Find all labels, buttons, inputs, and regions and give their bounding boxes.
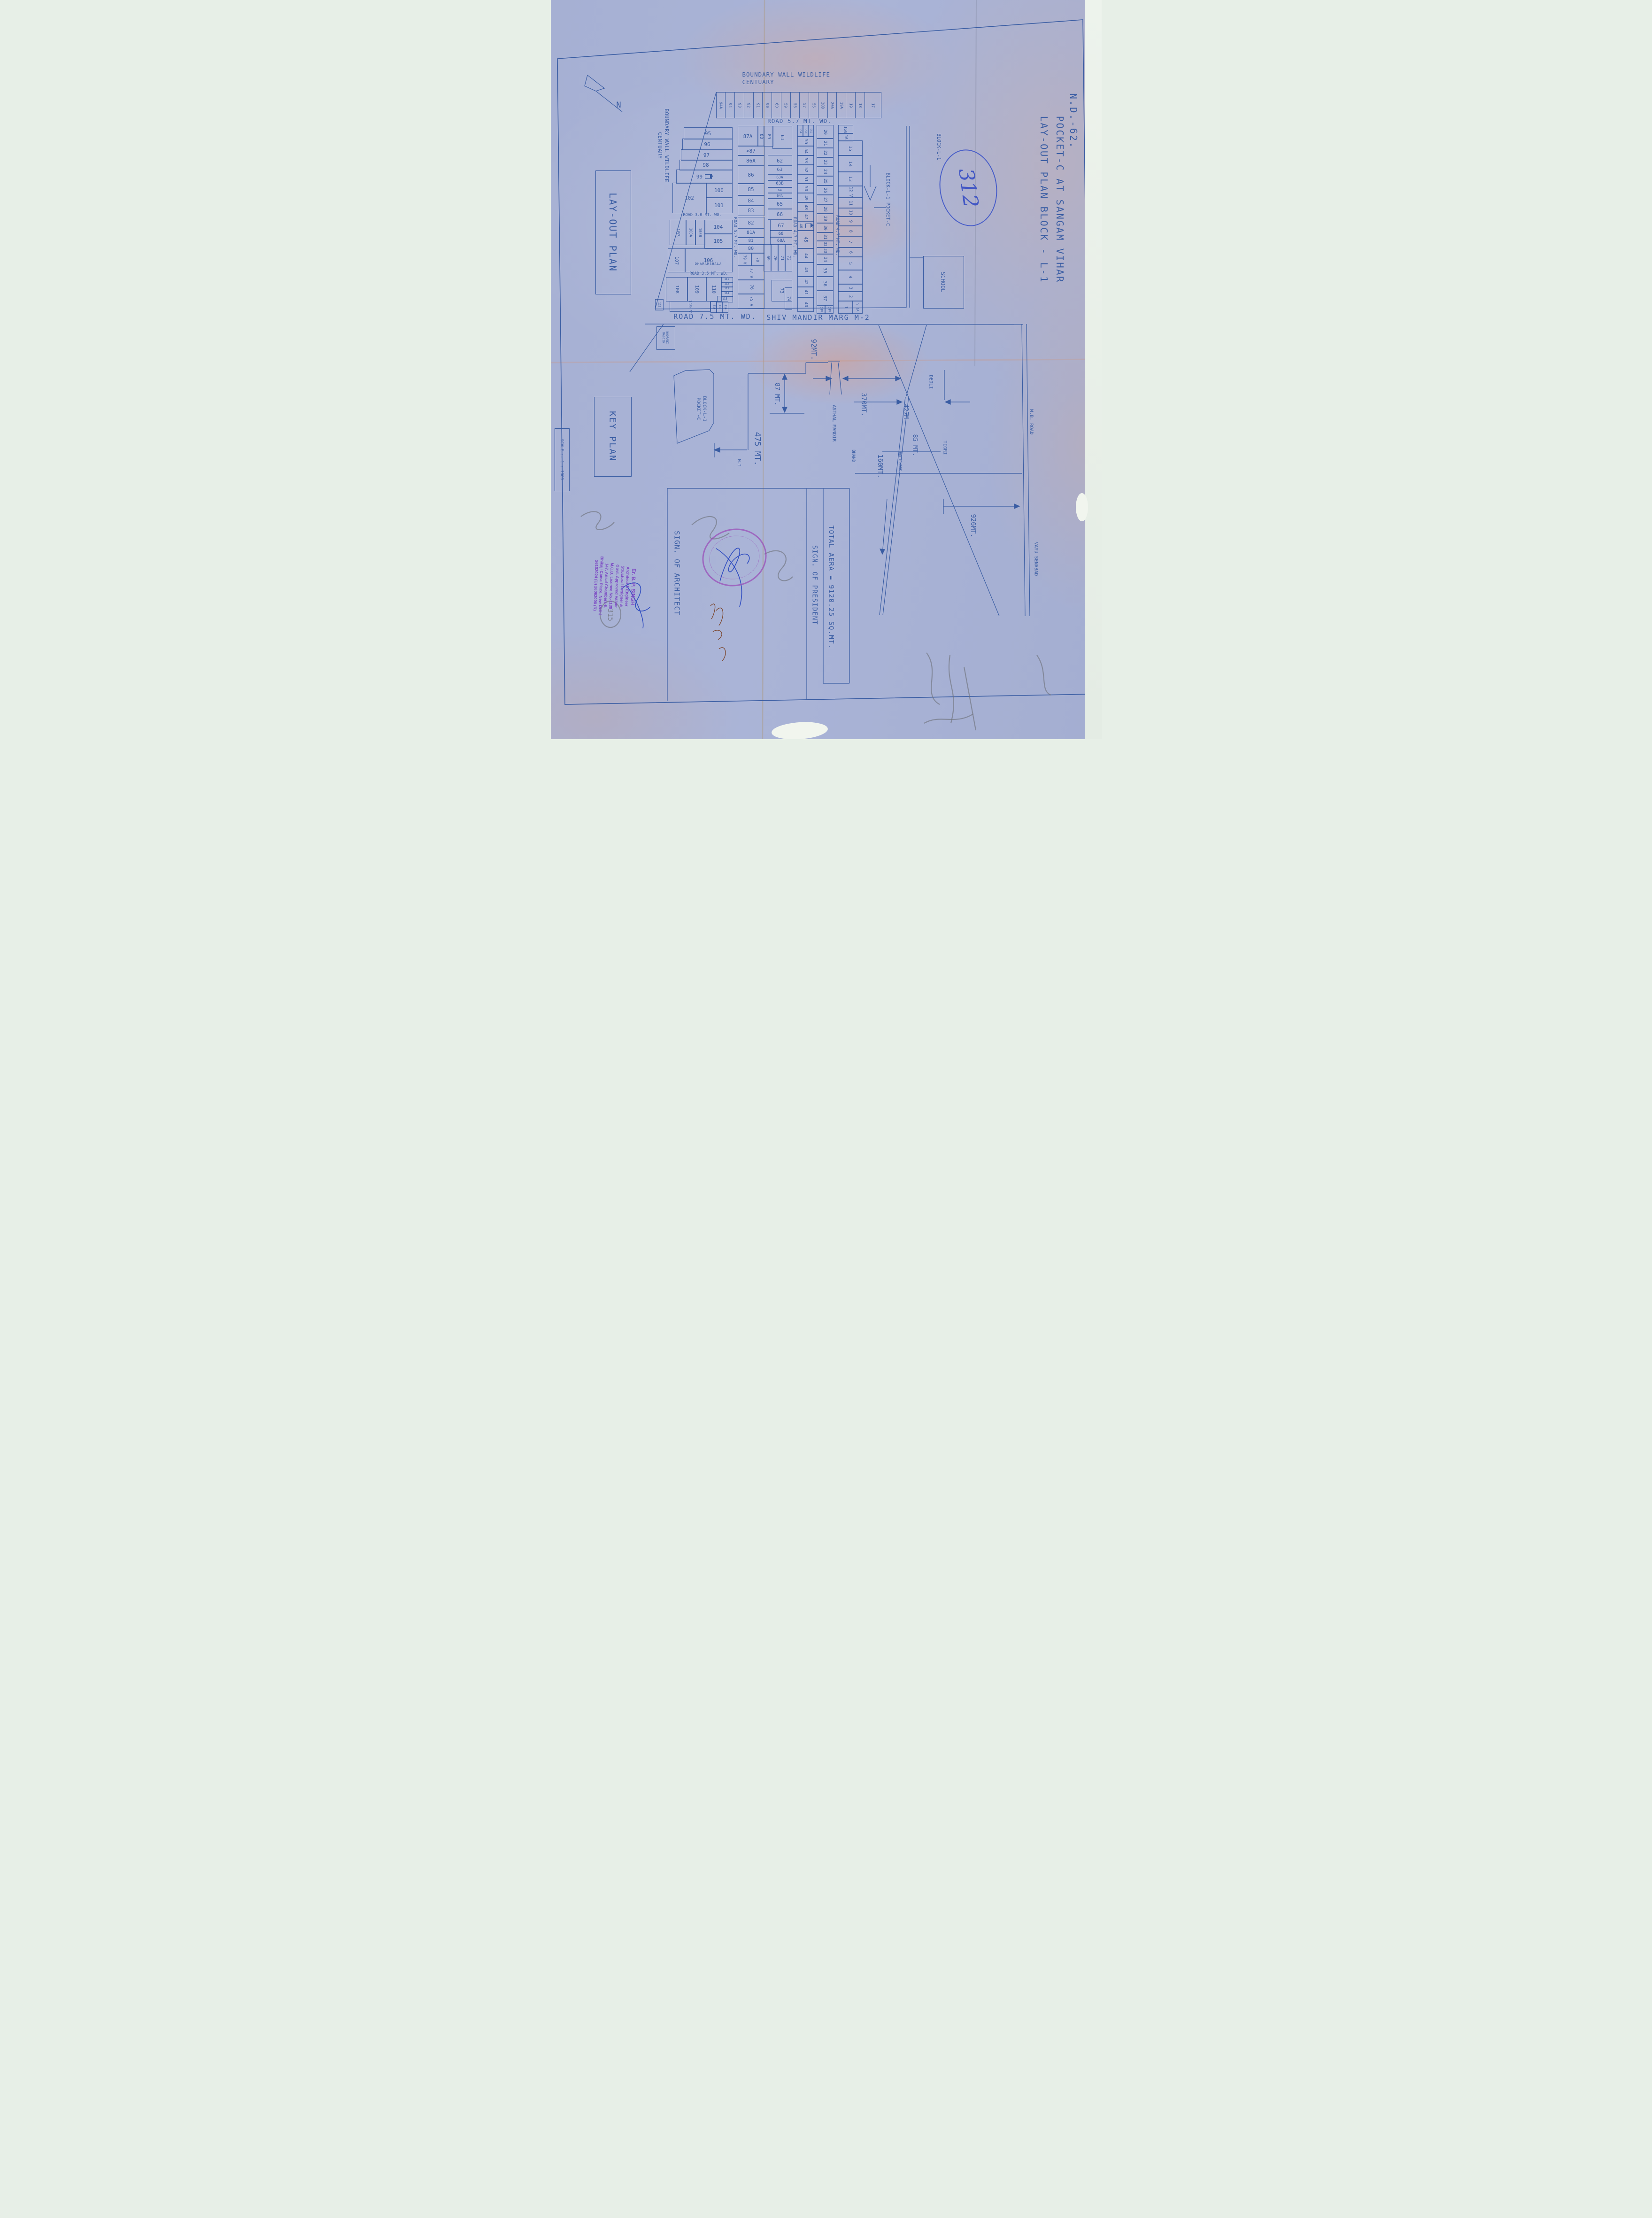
plot-76: 76 xyxy=(738,279,764,294)
plot-10: 10 xyxy=(838,208,863,217)
plot-50: 50 xyxy=(797,183,814,193)
layout-plan-label: LAY-OUT PLAN xyxy=(595,170,630,294)
road-label: ROAD 4.7 MT. WD. xyxy=(791,201,798,274)
plot-57: 57 xyxy=(800,93,809,118)
plot-56: 56 xyxy=(809,93,818,118)
block-l1: BLOCK-L-1 xyxy=(934,122,943,171)
plot-30: 30 xyxy=(817,223,834,233)
plot-100: 100 xyxy=(706,183,733,198)
plot-11: 11 xyxy=(838,197,863,209)
plot-42: 42 xyxy=(797,276,814,287)
road-35: ROAD 3.5 MT. WD. xyxy=(683,271,735,277)
plot-54: 54 xyxy=(797,146,814,156)
plot-37: 37 xyxy=(817,290,834,306)
plot-31: 31 xyxy=(817,232,834,241)
plot-66: 66 xyxy=(768,209,792,220)
plot-99: 99 xyxy=(676,170,733,184)
road-m1: M-I xyxy=(735,455,742,471)
school-label: SCHOOL xyxy=(923,256,963,308)
plot-47: 47 xyxy=(797,211,814,222)
plot-24: 24 xyxy=(817,166,834,177)
plot-8: 8 xyxy=(838,225,863,237)
plot-2: 2 xyxy=(838,291,863,301)
plot-46: 46 xyxy=(797,221,814,231)
plot-7: 7 xyxy=(838,236,863,248)
plot-21: 21 xyxy=(817,138,834,148)
plot-34: 34 xyxy=(817,254,834,265)
plot-89: 89 xyxy=(764,126,773,147)
plot-22: 22 xyxy=(817,147,834,158)
dim-92mt: 92MT. xyxy=(808,332,819,367)
plot-74: 74 xyxy=(785,287,792,310)
plot-45: 45 xyxy=(797,230,814,249)
plot-82: 82 xyxy=(738,217,764,229)
top-plot-row: 94A9493929190605958575620B20A19A191817 xyxy=(716,92,881,118)
plot-20A: 20A xyxy=(828,93,837,118)
north-label: N xyxy=(612,99,626,113)
plot-35: 35 xyxy=(817,264,834,277)
plot-67: 67 xyxy=(770,220,792,231)
plot-28: 28 xyxy=(817,204,834,214)
plot-98: 98 xyxy=(679,160,733,170)
plot-61: 61 xyxy=(772,126,792,149)
dim-87mt: 87 MT. xyxy=(772,376,783,412)
plot-120: 120 xyxy=(655,299,664,310)
plot-105: 105 xyxy=(704,233,733,248)
plot-65: 65 xyxy=(768,198,792,209)
total-area: TOTAL AERA = 9120.25 SQ.MT. xyxy=(825,493,837,681)
block-l1-pocket-c: BLOCK-L-1 POCKET-C xyxy=(882,155,893,244)
plot--87: <87 xyxy=(738,146,764,156)
plot-43: 43 xyxy=(797,262,814,277)
plot-59: 59 xyxy=(781,93,791,118)
plot-96: 96 xyxy=(682,139,733,150)
plot-80: 80 xyxy=(738,244,764,254)
plot-49: 49 xyxy=(797,193,814,203)
boundary-wall-left: BOUNDARY WALL WILDLIFE CENTUARY xyxy=(655,89,672,202)
mb-road: M.B. ROAD xyxy=(1027,399,1035,444)
page-title-line2: POCKET-C AT SANGAM VIHAR xyxy=(1053,87,1066,312)
plot-41: 41 xyxy=(797,286,814,298)
plot-103B: 103B xyxy=(695,220,705,245)
plot-36: 36 xyxy=(817,276,834,291)
plot-26: 26 xyxy=(817,185,834,195)
plot-51: 51 xyxy=(797,174,814,184)
plot-20: 20 xyxy=(817,125,834,139)
plot-55: 55 xyxy=(797,136,814,147)
plot-102: 102 xyxy=(672,183,707,213)
plot-62: 62 xyxy=(768,155,792,166)
plot-90: 90 xyxy=(763,93,772,118)
plot-92: 92 xyxy=(744,93,754,118)
keyplan-block-label: BLOCK-L-1 POCKET-C xyxy=(692,384,711,433)
plot-101: 101 xyxy=(706,197,733,213)
sign-of-architect: SIGN. OF ARCHITECT xyxy=(671,512,683,634)
road-label: ROAD 4.7 MT. WD. xyxy=(834,198,841,273)
plot-13: 13 xyxy=(838,171,863,186)
plot-19: 19 xyxy=(846,93,856,118)
plot-63: 63 xyxy=(768,165,792,175)
plot-25: 25 xyxy=(817,176,834,186)
plot-53: 53 xyxy=(797,155,814,165)
architect-stamp: Er. B. P. SINGH Architect & Engineer Str… xyxy=(578,545,652,626)
plot-6: 6 xyxy=(838,247,863,257)
plot-58: 58 xyxy=(791,93,800,118)
vayu-senabad: VAYU SENABAD xyxy=(1032,531,1040,587)
dim-427m: 427M xyxy=(901,396,910,426)
plot-52: 52 xyxy=(797,164,814,175)
plot-55C: 55C xyxy=(808,125,814,137)
plot-19A: 19A xyxy=(837,93,846,118)
tigri: TIGRI xyxy=(941,434,949,461)
plot-15: 15 xyxy=(838,140,863,156)
plot-94A: 94A xyxy=(717,93,726,118)
plot-86A: 86A xyxy=(738,155,764,166)
plot-27: 27 xyxy=(817,194,834,205)
plot-14: 14 xyxy=(838,155,863,172)
plot-95: 95 xyxy=(684,127,733,139)
plot-77-V: 77 V xyxy=(738,265,764,280)
plot-84: 84 xyxy=(738,195,764,206)
plot-103A: 103A xyxy=(686,220,696,245)
plot-97: 97 xyxy=(681,149,733,161)
holichook: HOLICHOOK xyxy=(896,446,903,477)
torn-edge xyxy=(1076,493,1088,521)
plot-4: 4 xyxy=(838,270,863,285)
plot-109: 109 xyxy=(687,277,707,301)
plot-86: 86 xyxy=(738,165,764,184)
plot-60: 60 xyxy=(772,93,781,118)
plot-5: 5 xyxy=(838,256,863,270)
scale-label: SCALE :- 1 : 1000 xyxy=(555,428,569,490)
plot-48: 48 xyxy=(797,202,814,212)
plot-93: 93 xyxy=(735,93,744,118)
road-label: ROAD 5.7 MT. WD. xyxy=(731,201,739,274)
plot-78: 78 xyxy=(751,253,764,266)
bhand: BHAND xyxy=(849,443,857,469)
road-30: ROAD 3.0 MT. WD. xyxy=(672,212,733,218)
dim-85mt: 85 MT. xyxy=(910,423,920,468)
plot-12-V: 12 V xyxy=(838,185,863,198)
dim-926mt: 926MT. xyxy=(968,502,978,549)
plot-17: 17 xyxy=(865,93,881,118)
plot-94: 94 xyxy=(726,93,735,118)
plot-107: 107 xyxy=(668,248,686,272)
asthal-mandir: ASTHAL MANDIR xyxy=(830,393,838,454)
plot-18: 18 xyxy=(856,93,865,118)
plot-85: 85 xyxy=(738,183,764,196)
plot-104: 104 xyxy=(704,220,733,234)
plot-119-V: 119 V xyxy=(670,301,710,312)
plot-87A: 87A xyxy=(738,126,758,147)
shiv-mandir-marg: SHIV MANDIR MARG M-2 xyxy=(748,312,889,323)
boundary-wall-top: BOUNDARY WALL WILDLIFE CENTUARY xyxy=(742,70,860,87)
road-57-top: ROAD 5.7 MT. WD. xyxy=(757,117,842,125)
plot-40: 40 xyxy=(797,297,814,312)
plot-75-V: 75 V xyxy=(738,294,764,309)
key-plan-label: KEY PLAN xyxy=(594,397,631,476)
deoli: DEOLI xyxy=(926,367,935,396)
plot-83: 83 xyxy=(738,205,764,216)
plot-103: 103 xyxy=(670,220,687,245)
plot-91: 91 xyxy=(754,93,763,118)
plot-106: 106DHARAMSHALA xyxy=(685,248,733,272)
sign-of-president: SIGN. OF PRESIDENT xyxy=(808,515,820,656)
hand-pump-icon xyxy=(805,224,812,228)
plot-81A: 81A xyxy=(738,228,764,238)
plot-44: 44 xyxy=(797,248,814,263)
plot-9: 9 xyxy=(838,216,863,226)
noorani-masjid: NOORANI MASJID xyxy=(656,326,674,349)
page-title: LAY-OUT PLAN BLOCK - L-1 xyxy=(1037,87,1050,312)
hand-pump-icon xyxy=(705,174,712,179)
plot-29: 29 xyxy=(817,213,834,224)
page-title-line3: N.D.-62. xyxy=(1067,88,1080,154)
plot-23: 23 xyxy=(817,157,834,167)
dim-475mt: 475 MT. xyxy=(750,419,764,479)
plot-20B: 20B xyxy=(818,93,828,118)
dim-370mt: 370MT. xyxy=(858,381,869,428)
paper-edge xyxy=(1085,0,1102,739)
dim-160mt: 160MT. xyxy=(875,444,885,488)
plot-79-V: 79 V xyxy=(738,253,752,266)
plot-108: 108 xyxy=(666,277,688,301)
blueprint-sheet: LAY-OUT PLAN BLOCK - L-1 POCKET-C AT SAN… xyxy=(551,0,1102,739)
